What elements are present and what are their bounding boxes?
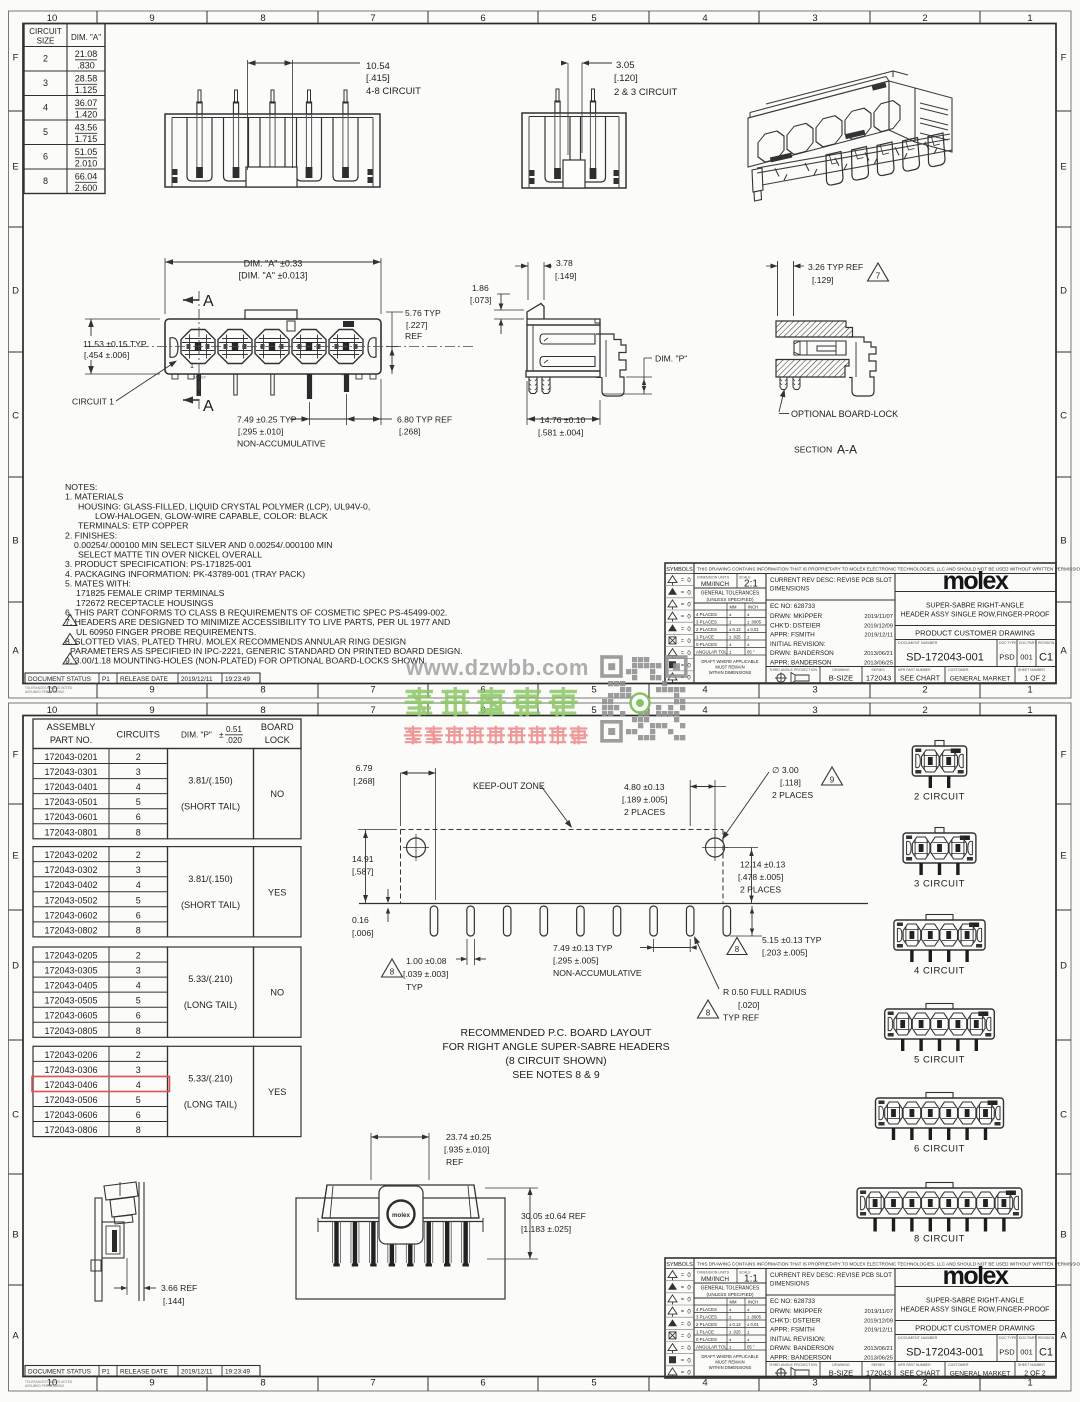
svg-text:1: 1 xyxy=(1027,13,1032,24)
svg-text:CHK'D: DSTEIER: CHK'D: DSTEIER xyxy=(770,622,821,629)
svg-text:10: 10 xyxy=(47,13,58,24)
svg-text:R 0.50 FULL RADIUS: R 0.50 FULL RADIUS xyxy=(723,987,807,997)
svg-text:[.268]: [.268] xyxy=(353,776,375,786)
svg-text:± .0005: ± .0005 xyxy=(747,620,762,625)
svg-text:F: F xyxy=(13,750,19,761)
svg-text:8: 8 xyxy=(136,827,141,837)
svg-text:(SHORT TAIL): (SHORT TAIL) xyxy=(181,900,240,910)
svg-text:[.120]: [.120] xyxy=(614,73,638,84)
svg-text:DRAFT WHERE APPLICABLE: DRAFT WHERE APPLICABLE xyxy=(701,659,758,664)
svg-text:REF: REF xyxy=(446,1157,463,1167)
svg-text:172043-0505: 172043-0505 xyxy=(44,996,97,1006)
svg-text:4 PLACES: 4 PLACES xyxy=(696,612,717,617)
svg-text:SELECT MATTE TIN OVER NICKEL O: SELECT MATTE TIN OVER NICKEL OVERALL xyxy=(78,550,262,560)
svg-text:5.33/(.210): 5.33/(.210) xyxy=(188,974,232,984)
svg-text:21.08: 21.08 xyxy=(75,49,98,59)
svg-text:(LONG TAIL): (LONG TAIL) xyxy=(184,1099,237,1109)
svg-text:5: 5 xyxy=(136,797,141,807)
svg-text:P1: P1 xyxy=(102,676,110,683)
svg-text:ASSUMED PER DRAWING: ASSUMED PER DRAWING xyxy=(25,1384,65,1388)
svg-text:172043-0606: 172043-0606 xyxy=(44,1110,97,1120)
svg-text:0.00254/.000100 MIN SELECT SIL: 0.00254/.000100 MIN SELECT SILVER AND 0.… xyxy=(74,540,333,550)
svg-text:172043-0306: 172043-0306 xyxy=(44,1065,97,1075)
svg-text:PART NO.: PART NO. xyxy=(50,735,92,745)
svg-text:TERMINALS: ETP COPPER: TERMINALS: ETP COPPER xyxy=(78,521,188,531)
svg-text:171825 FEMALE CRIMP TERMINALS: 171825 FEMALE CRIMP TERMINALS xyxy=(76,588,225,598)
svg-text:INCH: INCH xyxy=(748,1300,758,1305)
svg-text:D: D xyxy=(1060,961,1067,972)
svg-text:1.00 ±0.08: 1.00 ±0.08 xyxy=(406,956,447,966)
svg-text:172043-0305: 172043-0305 xyxy=(44,966,97,976)
svg-text:± 0.01: ± 0.01 xyxy=(747,627,759,632)
svg-text:2: 2 xyxy=(136,1050,141,1060)
svg-text:[.581 ±.004]: [.581 ±.004] xyxy=(538,428,583,438)
svg-text:[.227]: [.227] xyxy=(406,320,428,330)
svg-text:[.203 ±.005]: [.203 ±.005] xyxy=(762,948,807,958)
svg-text:SERIES: SERIES xyxy=(871,668,885,672)
svg-text:DIMENSIONS: DIMENSIONS xyxy=(770,1281,809,1288)
svg-text:INCH: INCH xyxy=(748,605,758,610)
svg-text:± .0005: ± .0005 xyxy=(747,1315,762,1320)
svg-text:(8 CIRCUIT SHOWN): (8 CIRCUIT SHOWN) xyxy=(505,1055,606,1067)
svg-text:2 PLACES: 2 PLACES xyxy=(772,790,813,800)
svg-text:3.26 TYP REF: 3.26 TYP REF xyxy=(808,262,863,272)
svg-text:WITHIN DIMENSIONS: WITHIN DIMENSIONS xyxy=(709,670,752,675)
svg-text:6.79: 6.79 xyxy=(356,763,373,773)
svg-text:molex: molex xyxy=(392,1212,410,1219)
svg-text:C: C xyxy=(1060,1110,1067,1121)
svg-text:[.073]: [.073] xyxy=(470,295,492,305)
svg-text:REVISION: REVISION xyxy=(1038,641,1055,645)
svg-text:2:1: 2:1 xyxy=(744,579,758,590)
svg-text:CIRCUIT: CIRCUIT xyxy=(29,27,62,36)
svg-text:INITIAL REVISION:: INITIAL REVISION: xyxy=(770,641,826,648)
svg-text:SUPER-SABRE RIGHT-ANGLE: SUPER-SABRE RIGHT-ANGLE xyxy=(926,1298,1024,1305)
svg-text:GENERAL TOLERANCES: GENERAL TOLERANCES xyxy=(701,1286,760,1292)
svg-text:1: 1 xyxy=(1027,685,1032,696)
svg-text:DRAFT WHERE APPLICABLE: DRAFT WHERE APPLICABLE xyxy=(701,1354,758,1359)
svg-text:2: 2 xyxy=(922,13,927,24)
svg-text:MFR PART NUMBER: MFR PART NUMBER xyxy=(898,1363,931,1367)
svg-text:172043-0805: 172043-0805 xyxy=(44,1026,97,1036)
svg-text:DIM. "P": DIM. "P" xyxy=(181,731,212,740)
svg-text:± 0.01: ± 0.01 xyxy=(747,1322,759,1327)
svg-text:6: 6 xyxy=(43,152,48,162)
svg-text:MM: MM xyxy=(730,1300,737,1305)
svg-text:6: 6 xyxy=(136,812,141,822)
svg-text:5: 5 xyxy=(591,13,596,24)
svg-text:DIM. "A": DIM. "A" xyxy=(71,33,101,42)
svg-text:2013/06/21: 2013/06/21 xyxy=(864,651,893,657)
svg-text:APPR: BANDERSON: APPR: BANDERSON xyxy=(770,660,832,667)
svg-text:4: 4 xyxy=(702,705,707,716)
svg-text:APPR: BANDERSON: APPR: BANDERSON xyxy=(770,1355,832,1362)
svg-text:GENERAL TOLERANCES: GENERAL TOLERANCES xyxy=(701,591,760,597)
svg-text:5: 5 xyxy=(136,895,141,905)
svg-text:E: E xyxy=(12,851,18,862)
svg-text:[.039 ±.003]: [.039 ±.003] xyxy=(403,969,448,979)
svg-text:B: B xyxy=(12,1230,18,1241)
svg-text:2 PLACES: 2 PLACES xyxy=(696,1322,717,1327)
svg-text:PRODUCT CUSTOMER DRAWING: PRODUCT CUSTOMER DRAWING xyxy=(915,1324,1035,1333)
svg-text:[.478 ±.005]: [.478 ±.005] xyxy=(738,872,783,882)
svg-text:GENERAL MARKET: GENERAL MARKET xyxy=(950,676,1011,683)
svg-text:3 PLACES: 3 PLACES xyxy=(696,1315,717,1320)
svg-text:3. PRODUCT SPECIFICATION: PS-1: 3. PRODUCT SPECIFICATION: PS-171825-001 xyxy=(65,559,252,569)
svg-text:C: C xyxy=(12,1110,19,1121)
svg-text:DOCUMENT STATUS: DOCUMENT STATUS xyxy=(28,1369,91,1376)
svg-text:2: 2 xyxy=(922,705,927,716)
svg-text:3: 3 xyxy=(136,865,141,875)
svg-text:C: C xyxy=(1060,411,1067,422)
svg-text:MM/INCH: MM/INCH xyxy=(701,1276,729,1283)
svg-text:PSD: PSD xyxy=(999,1348,1015,1357)
svg-text:SHEET NUMBER: SHEET NUMBER xyxy=(1018,1363,1045,1367)
svg-text:05 °: 05 ° xyxy=(747,650,755,655)
svg-text:2: 2 xyxy=(136,951,141,961)
svg-text:19:23:49: 19:23:49 xyxy=(225,676,250,683)
svg-text:GENERAL MARKET: GENERAL MARKET xyxy=(950,1371,1011,1378)
svg-text:2 PLACES: 2 PLACES xyxy=(624,807,665,817)
svg-text:8: 8 xyxy=(260,13,265,24)
svg-text:DRWN: MKIPPER: DRWN: MKIPPER xyxy=(770,613,822,620)
svg-text:5 CIRCUIT: 5 CIRCUIT xyxy=(914,1055,965,1066)
svg-text:DRWN: BANDERSON: DRWN: BANDERSON xyxy=(770,650,834,657)
svg-text:.830: .830 xyxy=(77,61,95,71)
svg-text:6: 6 xyxy=(136,1110,141,1120)
svg-text:172043-0201: 172043-0201 xyxy=(44,752,97,762)
svg-text:172043-0602: 172043-0602 xyxy=(44,910,97,920)
svg-text:[.268]: [.268] xyxy=(399,427,421,437)
svg-text:1.125: 1.125 xyxy=(75,85,98,95)
svg-text:3.81/(.150): 3.81/(.150) xyxy=(188,776,232,786)
svg-text:4.80 ±0.13: 4.80 ±0.13 xyxy=(624,782,665,792)
svg-text:molex: molex xyxy=(943,1262,1009,1290)
svg-text:CIRCUIT 1: CIRCUIT 1 xyxy=(72,397,114,407)
svg-text:P1: P1 xyxy=(102,1369,110,1376)
svg-text:MM: MM xyxy=(730,605,737,610)
svg-text:7.49 ±0.25 TYP: 7.49 ±0.25 TYP xyxy=(237,415,297,425)
svg-text:7: 7 xyxy=(876,272,881,281)
svg-text:6: 6 xyxy=(136,1011,141,1021)
svg-text:1. MATERIALS: 1. MATERIALS xyxy=(65,492,123,502)
svg-text:2019/11/07: 2019/11/07 xyxy=(864,1309,893,1315)
svg-text:B: B xyxy=(12,536,18,547)
svg-text:∅ 3.00: ∅ 3.00 xyxy=(772,765,799,775)
svg-text:1: 1 xyxy=(190,363,194,370)
svg-text:3: 3 xyxy=(136,1065,141,1075)
svg-text:8: 8 xyxy=(136,925,141,935)
svg-text:2 PLACES: 2 PLACES xyxy=(740,885,781,895)
svg-text:10.54: 10.54 xyxy=(366,61,390,72)
svg-text:4: 4 xyxy=(136,1080,141,1090)
svg-text:172043-0502: 172043-0502 xyxy=(44,895,97,905)
svg-text:4: 4 xyxy=(702,685,707,696)
svg-text:3.05: 3.05 xyxy=(616,60,635,71)
svg-text:2019/12/11: 2019/12/11 xyxy=(864,633,893,639)
svg-text:SD-172043-001: SD-172043-001 xyxy=(906,1347,984,1359)
svg-text:8: 8 xyxy=(260,685,265,696)
svg-text:DOC TYPE: DOC TYPE xyxy=(999,641,1017,645)
svg-text:NOTES:: NOTES: xyxy=(65,482,97,492)
svg-text:EC NO: 628733: EC NO: 628733 xyxy=(770,603,816,610)
svg-text:[.020]: [.020] xyxy=(738,1000,760,1010)
svg-text:2019/11/07: 2019/11/07 xyxy=(864,614,893,620)
svg-text:36.07: 36.07 xyxy=(75,98,98,108)
svg-text:2013/06/25: 2013/06/25 xyxy=(864,1356,893,1362)
svg-text:C1: C1 xyxy=(1039,1347,1053,1359)
svg-text:E: E xyxy=(1060,851,1066,862)
svg-text:A-A: A-A xyxy=(837,443,857,457)
svg-text:=: = xyxy=(681,626,684,632)
svg-text:ANGULAR TOL: ANGULAR TOL xyxy=(696,650,727,655)
svg-text:F: F xyxy=(1061,53,1067,64)
svg-text:5: 5 xyxy=(43,127,48,137)
svg-text:66.04: 66.04 xyxy=(75,172,98,182)
svg-text:1: 1 xyxy=(1027,1378,1032,1389)
svg-text:EC NO: 628733: EC NO: 628733 xyxy=(770,1298,816,1305)
svg-text:10: 10 xyxy=(47,705,58,716)
svg-text:1: 1 xyxy=(1027,705,1032,716)
svg-text:8: 8 xyxy=(260,1378,265,1389)
svg-text:172043-0601: 172043-0601 xyxy=(44,812,97,822)
svg-text:CUSTOMER: CUSTOMER xyxy=(948,1363,969,1367)
svg-text:[.129]: [.129] xyxy=(812,275,834,285)
svg-text:2019/12/11: 2019/12/11 xyxy=(181,676,213,683)
svg-text:172043-0406: 172043-0406 xyxy=(44,1080,97,1090)
svg-text:A: A xyxy=(1060,646,1067,657)
svg-text:[.415]: [.415] xyxy=(366,73,390,84)
svg-text:0 PLACES: 0 PLACES xyxy=(696,642,717,647)
svg-text:=: = xyxy=(681,590,684,596)
svg-text:5.76 TYP: 5.76 TYP xyxy=(405,308,441,318)
svg-text:0 PLACES: 0 PLACES xyxy=(696,1337,717,1342)
svg-text:THIS DRAWING CONTAINS INFORMAT: THIS DRAWING CONTAINS INFORMATION THAT I… xyxy=(697,1262,1080,1267)
svg-text:51.05: 51.05 xyxy=(75,147,98,157)
svg-text:=: = xyxy=(681,578,684,584)
svg-text:=: = xyxy=(681,614,684,620)
svg-text:D: D xyxy=(1060,286,1067,297)
svg-text:2 & 3 CIRCUIT: 2 & 3 CIRCUIT xyxy=(614,87,678,98)
svg-text:[DIM. "A" ±0.013]: [DIM. "A" ±0.013] xyxy=(239,271,308,281)
svg-text:=: = xyxy=(681,1285,684,1291)
svg-text:1 PLACE: 1 PLACE xyxy=(696,1330,714,1335)
svg-text:3.78: 3.78 xyxy=(556,258,573,268)
svg-text:DOCUMENT STATUS: DOCUMENT STATUS xyxy=(28,676,91,683)
svg-text:molex: molex xyxy=(943,567,1009,595)
svg-text:NO: NO xyxy=(270,789,284,799)
svg-text:4-8 CIRCUIT: 4-8 CIRCUIT xyxy=(366,86,421,97)
svg-text:MUST REMAIN: MUST REMAIN xyxy=(715,1360,744,1365)
svg-text:2: 2 xyxy=(922,685,927,696)
svg-text:2019/12/09: 2019/12/09 xyxy=(864,1318,893,1324)
svg-text:[.587]: [.587] xyxy=(352,867,374,877)
svg-text:2.010: 2.010 xyxy=(75,159,98,169)
svg-text:6: 6 xyxy=(480,13,485,24)
svg-text:0.16: 0.16 xyxy=(352,915,369,925)
svg-text:www.dzwbb.com: www.dzwbb.com xyxy=(405,655,589,680)
svg-text:8 CIRCUIT: 8 CIRCUIT xyxy=(914,1234,965,1245)
svg-text:SERIES: SERIES xyxy=(871,1363,885,1367)
svg-text:3.66 REF: 3.66 REF xyxy=(161,1283,197,1293)
svg-text:8: 8 xyxy=(706,1009,711,1018)
svg-text:(SHORT TAIL): (SHORT TAIL) xyxy=(181,802,240,812)
svg-text:DRAWING: DRAWING xyxy=(832,668,849,672)
svg-text:9: 9 xyxy=(149,705,154,716)
svg-text:9. 3.00/1.18 MOUNTING-HOLES (N: 9. 3.00/1.18 MOUNTING-HOLES (NON-PLATED)… xyxy=(65,656,427,666)
svg-text:A: A xyxy=(1060,1331,1067,1342)
svg-text:4: 4 xyxy=(136,782,141,792)
svg-text:5: 5 xyxy=(136,996,141,1006)
svg-text:172043-0605: 172043-0605 xyxy=(44,1011,97,1021)
svg-text:ASSEMBLY: ASSEMBLY xyxy=(47,722,96,732)
svg-text:REVISION: REVISION xyxy=(1038,1336,1055,1340)
svg-text:2. FINISHES:: 2. FINISHES: xyxy=(65,530,117,540)
svg-text:TYP: TYP xyxy=(406,982,423,992)
svg-text:A: A xyxy=(203,398,214,415)
svg-text:RECOMMENDED P.C. BOARD LAYOUT: RECOMMENDED P.C. BOARD LAYOUT xyxy=(461,1027,653,1039)
svg-text:172043-0302: 172043-0302 xyxy=(44,865,97,875)
svg-text:.020: .020 xyxy=(226,736,242,745)
svg-text:DIMENSION UNITS: DIMENSION UNITS xyxy=(697,1271,730,1275)
svg-text:[1.183 ±.025]: [1.183 ±.025] xyxy=(521,1224,571,1234)
svg-text:5. MATES WITH:: 5. MATES WITH: xyxy=(65,579,131,589)
svg-text:SIZE: SIZE xyxy=(37,37,55,46)
svg-text:001: 001 xyxy=(1020,653,1033,662)
svg-text:1.715: 1.715 xyxy=(75,134,98,144)
svg-text:[.189 ±.005]: [.189 ±.005] xyxy=(622,795,667,805)
svg-text:[.118]: [.118] xyxy=(780,778,801,788)
svg-text:5: 5 xyxy=(591,1378,596,1389)
svg-text:DRWN: BANDERSON: DRWN: BANDERSON xyxy=(770,1345,834,1352)
svg-text:19:23:49: 19:23:49 xyxy=(225,1369,250,1376)
svg-text:7. HEADERS ARE DESIGNED TO MIN: 7. HEADERS ARE DESIGNED TO MINIMIZE ACCE… xyxy=(65,617,450,627)
svg-text:B-SIZE: B-SIZE xyxy=(829,674,853,683)
svg-text:ASSUMED PER DRAWING: ASSUMED PER DRAWING xyxy=(25,690,65,694)
svg-text:2 CIRCUIT: 2 CIRCUIT xyxy=(914,792,965,803)
svg-text:[.006]: [.006] xyxy=(352,928,374,938)
svg-text:DOCUMENT NUMBER: DOCUMENT NUMBER xyxy=(898,1336,938,1340)
svg-text:SUPER-SABRE RIGHT-ANGLE: SUPER-SABRE RIGHT-ANGLE xyxy=(926,603,1024,610)
svg-text:RELEASE DATE: RELEASE DATE xyxy=(120,1369,168,1376)
svg-text:±: ± xyxy=(219,731,224,740)
svg-text:[.295 ±.005]: [.295 ±.005] xyxy=(553,956,598,966)
svg-text:SEE CHART: SEE CHART xyxy=(900,1371,941,1378)
svg-text:8: 8 xyxy=(136,1125,141,1135)
svg-text:3: 3 xyxy=(812,1378,817,1389)
svg-text:LOW-HALOGEN, GLOW-WIRE CAPABLE: LOW-HALOGEN, GLOW-WIRE CAPABLE, COLOR: B… xyxy=(95,511,328,521)
svg-text:CURRENT REV DESC: REVISE PCB S: CURRENT REV DESC: REVISE PCB SLOT xyxy=(770,577,892,584)
svg-text:6: 6 xyxy=(136,910,141,920)
svg-text:172043-0401: 172043-0401 xyxy=(44,782,97,792)
svg-text:2019/12/09: 2019/12/09 xyxy=(864,623,893,629)
svg-text:4 CIRCUIT: 4 CIRCUIT xyxy=(914,966,965,977)
svg-text:2 OF 2: 2 OF 2 xyxy=(1024,1371,1046,1378)
svg-text:3: 3 xyxy=(812,685,817,696)
svg-text:PSD: PSD xyxy=(999,653,1015,662)
svg-text:DIM. "A" ±0.33: DIM. "A" ±0.33 xyxy=(244,259,303,269)
svg-text:DRWN: MKIPPER: DRWN: MKIPPER xyxy=(770,1308,822,1315)
svg-text:14.91: 14.91 xyxy=(352,854,374,864)
svg-text:(UNLESS SPECIFIED): (UNLESS SPECIFIED) xyxy=(707,1292,754,1297)
svg-text:2013/06/25: 2013/06/25 xyxy=(864,661,893,667)
svg-text:4: 4 xyxy=(702,13,707,24)
svg-text:3 CIRCUIT: 3 CIRCUIT xyxy=(914,879,965,890)
svg-text:6: 6 xyxy=(480,1378,485,1389)
svg-text:28.58: 28.58 xyxy=(75,74,98,84)
svg-text:172043-0802: 172043-0802 xyxy=(44,925,97,935)
svg-text:8: 8 xyxy=(390,968,395,977)
svg-text:[.295 ±.010]: [.295 ±.010] xyxy=(238,427,283,437)
svg-text:=: = xyxy=(681,1297,684,1303)
svg-text:=: = xyxy=(681,1309,684,1315)
svg-text:7: 7 xyxy=(370,685,375,696)
svg-text:6.80 TYP REF: 6.80 TYP REF xyxy=(397,415,452,425)
svg-text:=: = xyxy=(681,602,684,608)
svg-text:3: 3 xyxy=(43,78,48,88)
svg-text:2: 2 xyxy=(136,752,141,762)
svg-text:05 °: 05 ° xyxy=(747,1345,755,1350)
svg-text:RELEASE DATE: RELEASE DATE xyxy=(120,676,168,683)
svg-text:[.454 ±.006]: [.454 ±.006] xyxy=(84,350,129,360)
svg-text:CHK'D: DSTEIER: CHK'D: DSTEIER xyxy=(770,1317,821,1324)
svg-text:172043: 172043 xyxy=(866,674,891,683)
svg-text:2: 2 xyxy=(136,850,141,860)
svg-text:172043-0301: 172043-0301 xyxy=(44,767,97,777)
svg-text:NO: NO xyxy=(270,988,284,998)
svg-text:D: D xyxy=(12,961,19,972)
svg-text:3: 3 xyxy=(136,767,141,777)
svg-text:NON-ACCUMULATIVE: NON-ACCUMULATIVE xyxy=(237,439,326,449)
svg-text:D: D xyxy=(12,286,19,297)
svg-text:5: 5 xyxy=(136,1095,141,1105)
svg-text:OPTIONAL BOARD-LOCK: OPTIONAL BOARD-LOCK xyxy=(791,409,898,419)
svg-text:SD-172043-001: SD-172043-001 xyxy=(906,652,984,664)
svg-text:TYP REF: TYP REF xyxy=(723,1013,759,1023)
svg-text:E: E xyxy=(1060,162,1066,173)
svg-text:2 PLACES: 2 PLACES xyxy=(696,627,717,632)
svg-text:B: B xyxy=(1060,536,1066,547)
svg-text:5: 5 xyxy=(591,705,596,716)
svg-text:[.149]: [.149] xyxy=(555,271,577,281)
svg-text:CUSTOMER: CUSTOMER xyxy=(948,668,969,672)
svg-text:=: = xyxy=(681,1370,684,1376)
svg-text:APPR: FSMITH: APPR: FSMITH xyxy=(770,1327,815,1334)
svg-text:SECTION: SECTION xyxy=(794,445,832,455)
svg-text:2013/06/21: 2013/06/21 xyxy=(864,1346,893,1352)
svg-text:7: 7 xyxy=(370,1378,375,1389)
svg-text:172043-0501: 172043-0501 xyxy=(44,797,97,807)
svg-text:PRODUCT CUSTOMER DRAWING: PRODUCT CUSTOMER DRAWING xyxy=(915,629,1035,638)
svg-text:5.33/(.210): 5.33/(.210) xyxy=(188,1073,232,1083)
svg-text:172043-0506: 172043-0506 xyxy=(44,1095,97,1105)
svg-text:2: 2 xyxy=(922,1378,927,1389)
svg-text:DRAWING: DRAWING xyxy=(832,1363,849,1367)
svg-text:9: 9 xyxy=(149,1378,154,1389)
svg-text:YES: YES xyxy=(268,1087,286,1097)
svg-text:=: = xyxy=(681,1346,684,1352)
svg-text:3: 3 xyxy=(812,705,817,716)
svg-text:172043-0205: 172043-0205 xyxy=(44,951,97,961)
svg-text:MM/INCH: MM/INCH xyxy=(701,581,729,588)
svg-text:4: 4 xyxy=(702,1378,707,1389)
svg-text:2.600: 2.600 xyxy=(75,183,98,193)
svg-text:7.49 ±0.13 TYP: 7.49 ±0.13 TYP xyxy=(553,943,613,953)
svg-text:DOC PART: DOC PART xyxy=(1019,1336,1036,1340)
svg-text:CIRCUITS: CIRCUITS xyxy=(117,730,160,740)
svg-text:C: C xyxy=(12,411,19,422)
svg-text:5: 5 xyxy=(591,685,596,696)
